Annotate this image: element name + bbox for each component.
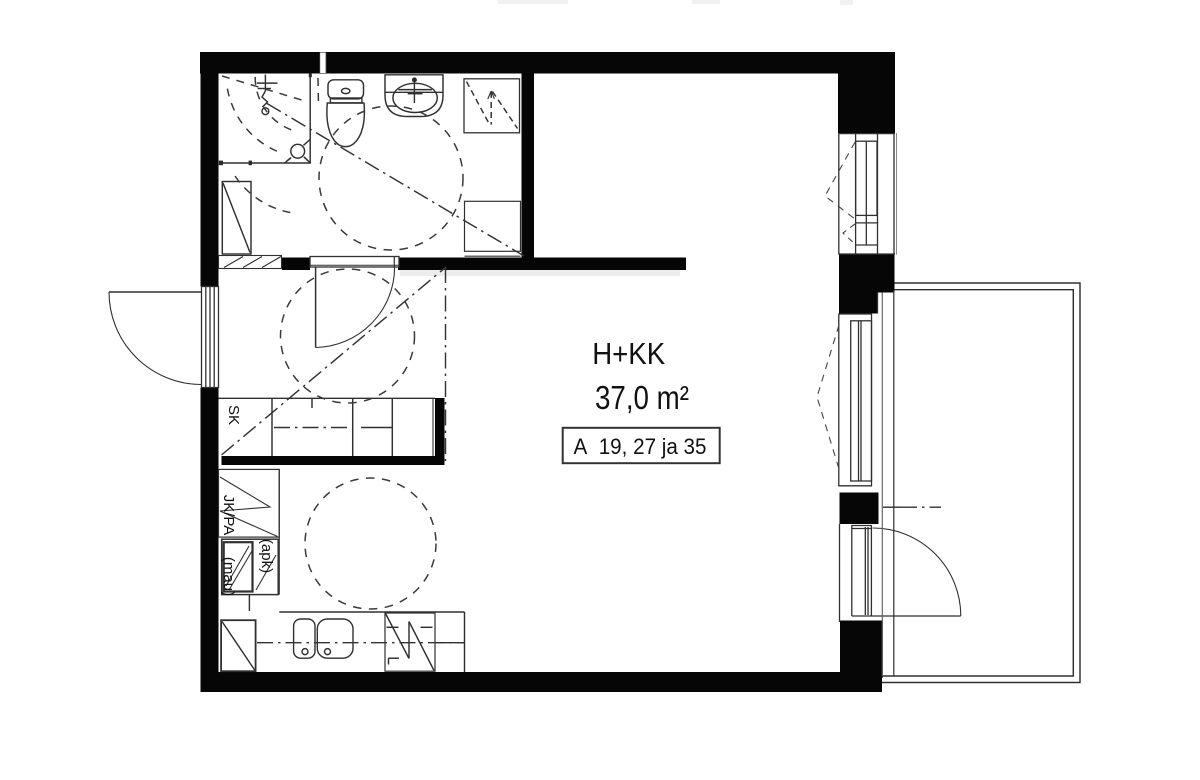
svg-text:JK/PA: JK/PA <box>220 495 237 536</box>
svg-text:SK: SK <box>225 405 242 425</box>
svg-text:(apk): (apk) <box>258 539 275 573</box>
svg-text:H+KK: H+KK <box>592 336 665 371</box>
svg-text:37,0 m²: 37,0 m² <box>595 379 689 416</box>
svg-text:A 19, 27 ja 35: A 19, 27 ja 35 <box>574 434 707 459</box>
svg-text:(mau): (mau) <box>220 557 237 596</box>
